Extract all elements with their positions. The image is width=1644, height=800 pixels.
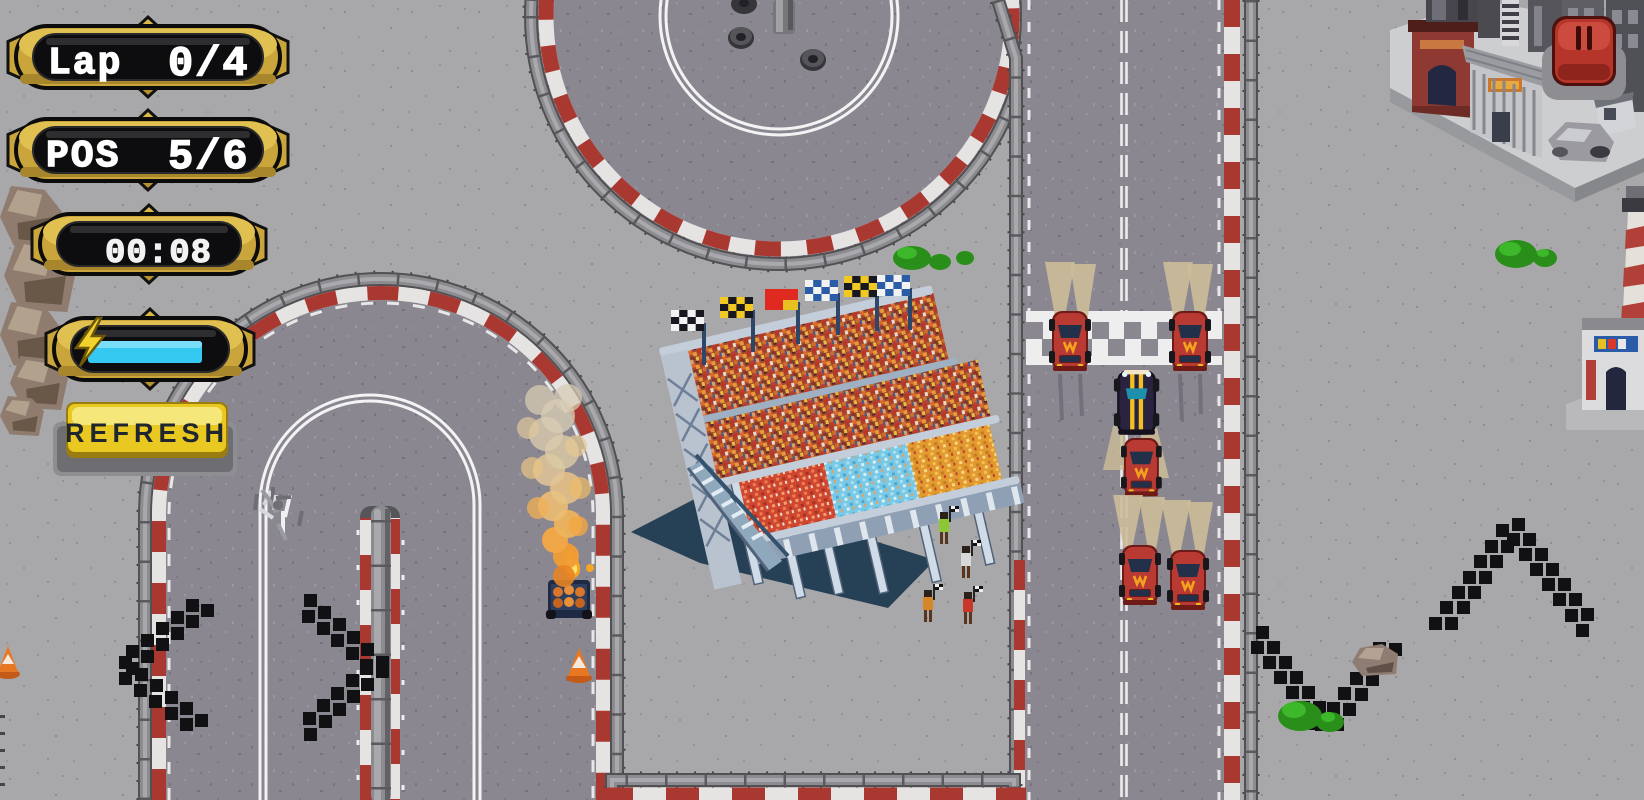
svg-text:0/4: 0/4 bbox=[168, 40, 250, 88]
svg-text:POS: POS bbox=[46, 135, 120, 178]
svg-text:00:08: 00:08 bbox=[105, 235, 212, 273]
svg-text:Lap: Lap bbox=[48, 42, 122, 85]
svg-text:5/6: 5/6 bbox=[168, 133, 250, 181]
svg-text:REFRESH: REFRESH bbox=[65, 418, 229, 448]
